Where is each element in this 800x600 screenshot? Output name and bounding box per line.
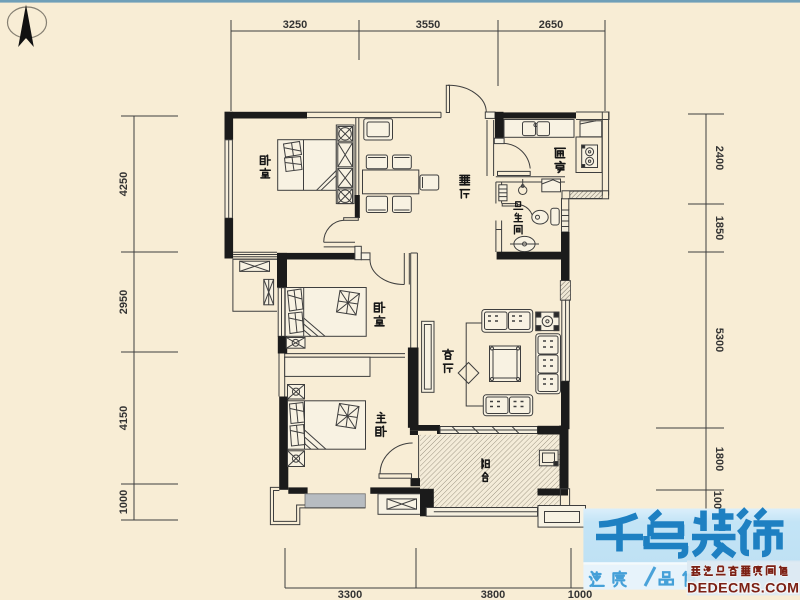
svg-text:2950: 2950 — [118, 290, 130, 314]
svg-text:DEDECMS.COM: DEDECMS.COM — [687, 581, 799, 597]
svg-text:1800: 1800 — [713, 447, 725, 471]
svg-text:5300: 5300 — [713, 328, 725, 352]
svg-text:3550: 3550 — [416, 19, 440, 31]
svg-text:1000: 1000 — [568, 589, 592, 600]
svg-text:2650: 2650 — [539, 19, 563, 31]
svg-text:3250: 3250 — [283, 19, 307, 31]
svg-text:1000: 1000 — [118, 490, 130, 514]
svg-text:2400: 2400 — [713, 146, 725, 170]
svg-text:1850: 1850 — [713, 216, 725, 240]
svg-text:4250: 4250 — [118, 172, 130, 196]
svg-text:4150: 4150 — [118, 406, 130, 430]
svg-text:3300: 3300 — [338, 589, 362, 600]
svg-text:3800: 3800 — [481, 589, 505, 600]
